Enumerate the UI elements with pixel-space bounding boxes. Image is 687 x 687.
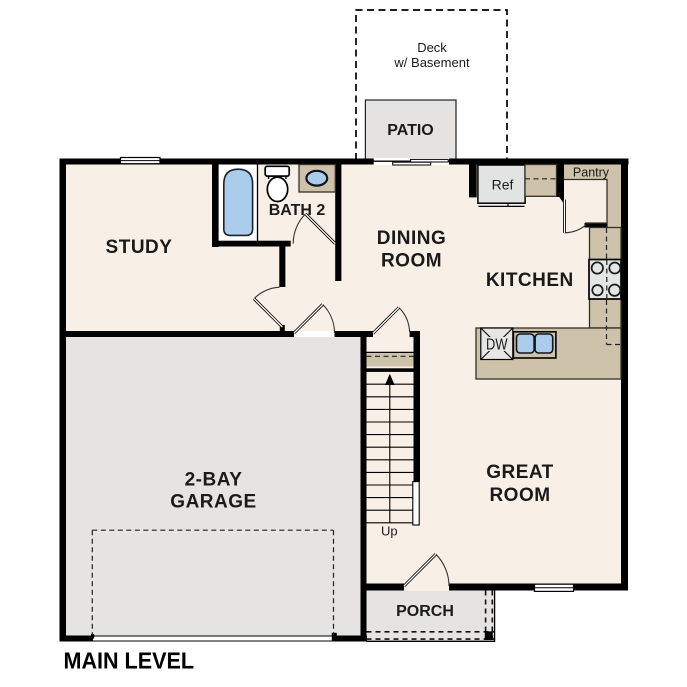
svg-text:Deck: Deck — [417, 40, 447, 55]
svg-text:2-BAY: 2-BAY — [185, 470, 243, 491]
svg-text:DINING: DINING — [377, 228, 447, 249]
svg-text:GREAT: GREAT — [486, 462, 554, 483]
svg-text:GARAGE: GARAGE — [170, 492, 256, 513]
svg-text:ROOM: ROOM — [489, 485, 550, 506]
svg-text:STUDY: STUDY — [106, 237, 173, 258]
svg-text:BATH 2: BATH 2 — [269, 202, 326, 219]
svg-text:Pantry: Pantry — [573, 166, 610, 180]
svg-text:MAIN LEVEL: MAIN LEVEL — [64, 648, 195, 674]
svg-text:PATIO: PATIO — [387, 122, 434, 139]
svg-text:DW: DW — [486, 337, 508, 354]
svg-text:Up: Up — [381, 524, 398, 539]
svg-text:KITCHEN: KITCHEN — [486, 270, 574, 291]
svg-text:Ref: Ref — [492, 177, 514, 193]
svg-text:ROOM: ROOM — [381, 251, 442, 272]
svg-text:w/ Basement: w/ Basement — [393, 55, 470, 70]
svg-text:PORCH: PORCH — [396, 603, 454, 620]
